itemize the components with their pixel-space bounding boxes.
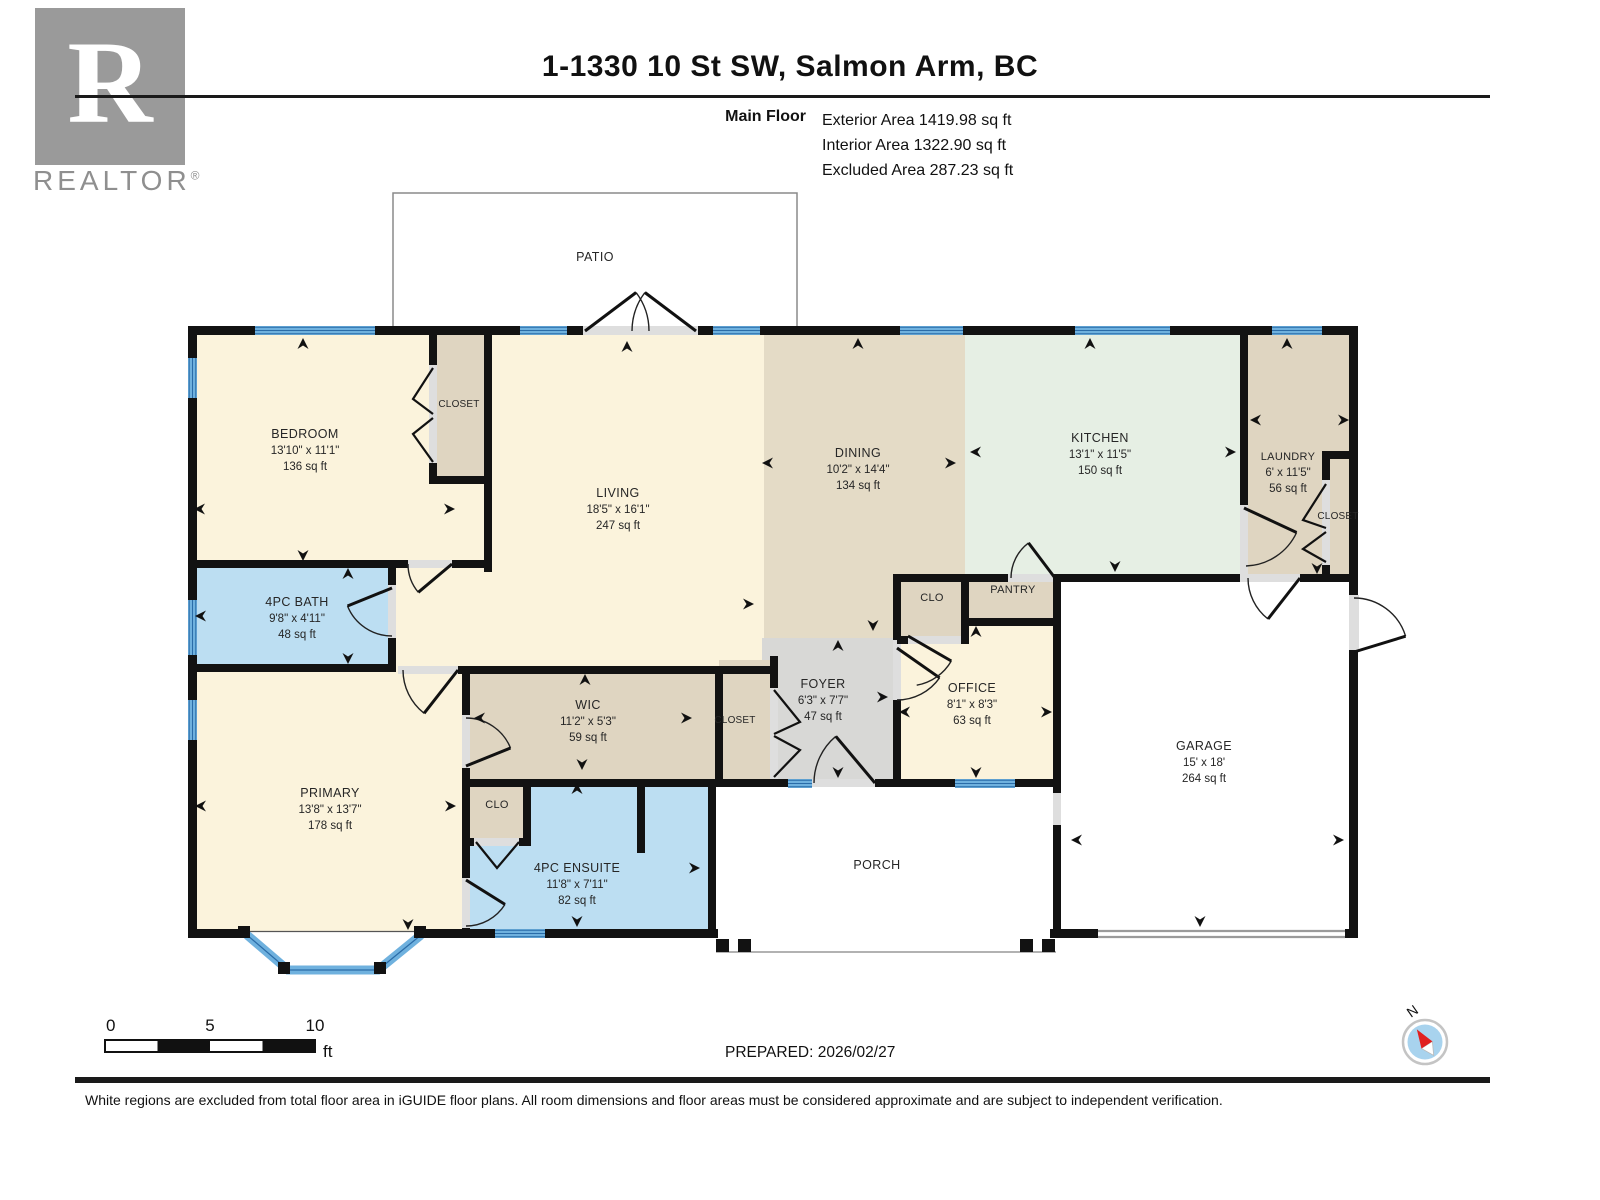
room-label-dining: DINING xyxy=(835,446,881,460)
room-label-wic: WIC xyxy=(575,698,601,712)
room-label-office: OFFICE xyxy=(948,681,996,695)
room-label-primary: PRIMARY xyxy=(300,786,360,800)
room-dims-ensuite: 11'8" x 7'11" xyxy=(546,879,607,891)
room-area-foyer: 47 sq ft xyxy=(804,711,843,723)
room-dims-office: 8'1" x 8'3" xyxy=(947,699,997,711)
room-area-kitchen: 150 sq ft xyxy=(1078,465,1123,477)
room-dims-kitchen: 13'1" x 11'5" xyxy=(1069,449,1131,461)
room-label-kitchen: KITCHEN xyxy=(1071,431,1129,445)
compass: N xyxy=(1403,1002,1447,1064)
room-dims-living: 18'5" x 16'1" xyxy=(586,504,649,516)
prepared-date: PREPARED: 2026/02/27 xyxy=(725,1044,895,1061)
room-label-bath: 4PC BATH xyxy=(265,595,328,609)
room-area-primary: 178 sq ft xyxy=(308,820,353,832)
scale-tick-0: 0 xyxy=(106,1016,115,1035)
room-label-closet-laundry: CLOSET xyxy=(1317,511,1358,522)
room-area-ensuite: 82 sq ft xyxy=(558,895,597,907)
room-label-pantry: PANTRY xyxy=(990,584,1036,596)
scale-bar: 0 5 10 ft xyxy=(105,1016,333,1061)
room-label-closet-bedroom: CLOSET xyxy=(438,399,479,410)
room-dims-laundry: 6' x 11'5" xyxy=(1265,467,1310,479)
footer-divider xyxy=(75,1077,1490,1083)
room-dims-dining: 10'2" x 14'4" xyxy=(826,464,889,476)
room-label-foyer: FOYER xyxy=(800,677,845,691)
room-area-bath: 48 sq ft xyxy=(278,629,317,641)
room-area-living: 247 sq ft xyxy=(596,520,641,532)
room-dims-bedroom: 13'10" x 11'1" xyxy=(271,445,340,457)
scale-unit: ft xyxy=(323,1042,333,1061)
room-area-dining: 134 sq ft xyxy=(836,480,881,492)
room-label-ensuite: 4PC ENSUITE xyxy=(534,861,620,875)
room-area-office: 63 sq ft xyxy=(953,715,992,727)
floor-plan: PATIO BEDROOM 13'10" x 11'1" 136 sq ft C… xyxy=(0,0,1600,1200)
room-label-garage: GARAGE xyxy=(1176,739,1232,753)
room-area-bedroom: 136 sq ft xyxy=(283,461,328,473)
room-label-porch: PORCH xyxy=(853,858,900,872)
room-label-bedroom: BEDROOM xyxy=(271,427,338,441)
room-label-patio: PATIO xyxy=(576,250,614,264)
room-area-garage: 264 sq ft xyxy=(1182,773,1227,785)
compass-north-label: N xyxy=(1404,1002,1421,1021)
room-label-living: LIVING xyxy=(596,486,639,500)
room-label-clo-primary: CLO xyxy=(485,799,509,811)
scale-tick-5: 5 xyxy=(205,1016,214,1035)
room-dims-bath: 9'8" x 4'11" xyxy=(269,613,325,625)
room-label-closet-hall: CLOSET xyxy=(714,715,755,726)
disclaimer-text: White regions are excluded from total fl… xyxy=(85,1092,1223,1108)
room-dims-garage: 15' x 18' xyxy=(1183,757,1225,769)
floor-plan-geometry xyxy=(188,193,1406,974)
room-area-wic: 59 sq ft xyxy=(569,732,608,744)
room-dims-foyer: 6'3" x 7'7" xyxy=(798,695,848,707)
header-divider xyxy=(75,95,1490,98)
room-dims-wic: 11'2" x 5'3" xyxy=(560,716,616,728)
room-dims-primary: 13'8" x 13'7" xyxy=(298,804,361,816)
room-label-clo-office: CLO xyxy=(920,592,944,604)
room-label-laundry: LAUNDRY xyxy=(1261,451,1316,463)
scale-tick-10: 10 xyxy=(306,1016,325,1035)
room-area-laundry: 56 sq ft xyxy=(1269,483,1308,495)
